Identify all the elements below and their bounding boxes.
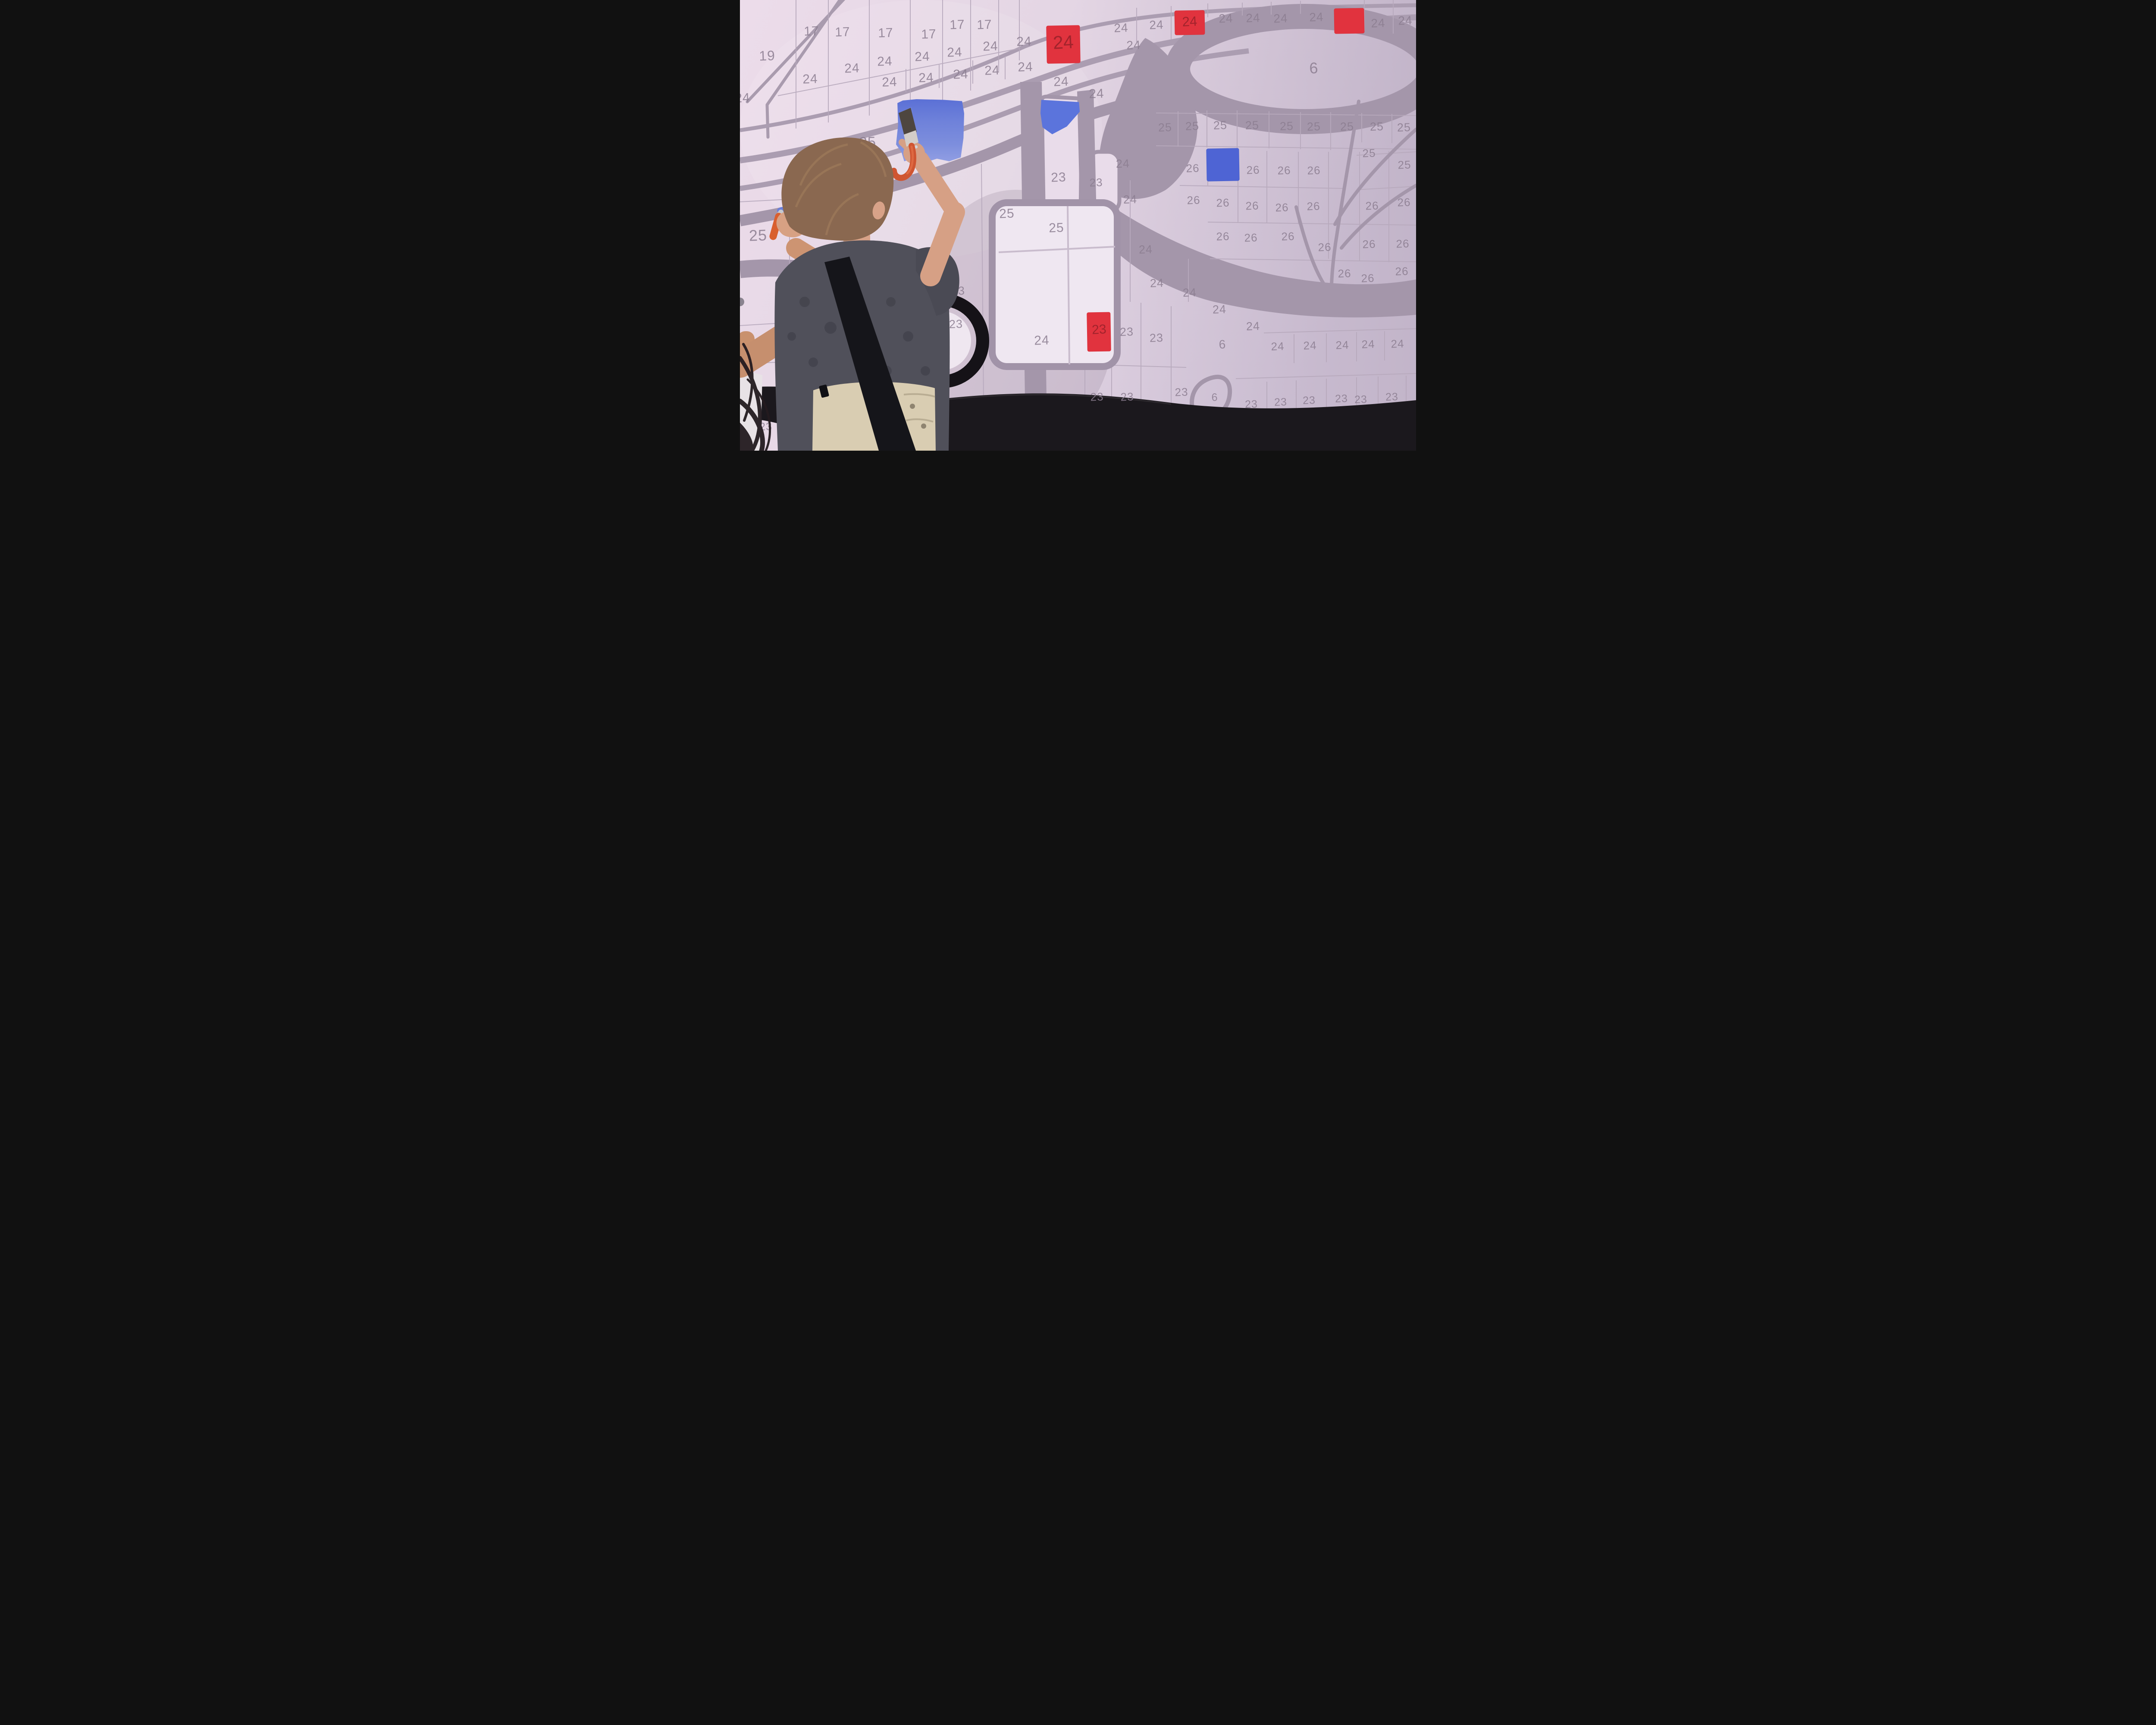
- photo-scene: 1717171717171924242424242424242424242424…: [740, 0, 1416, 451]
- boy-figure: [740, 107, 959, 451]
- boy-paintbrush: [894, 107, 918, 178]
- boy-hair: [781, 138, 893, 241]
- figures: [740, 0, 1416, 451]
- shorts-button: [910, 404, 915, 409]
- shorts-button-2: [921, 423, 926, 429]
- boy-forearm: [920, 160, 955, 212]
